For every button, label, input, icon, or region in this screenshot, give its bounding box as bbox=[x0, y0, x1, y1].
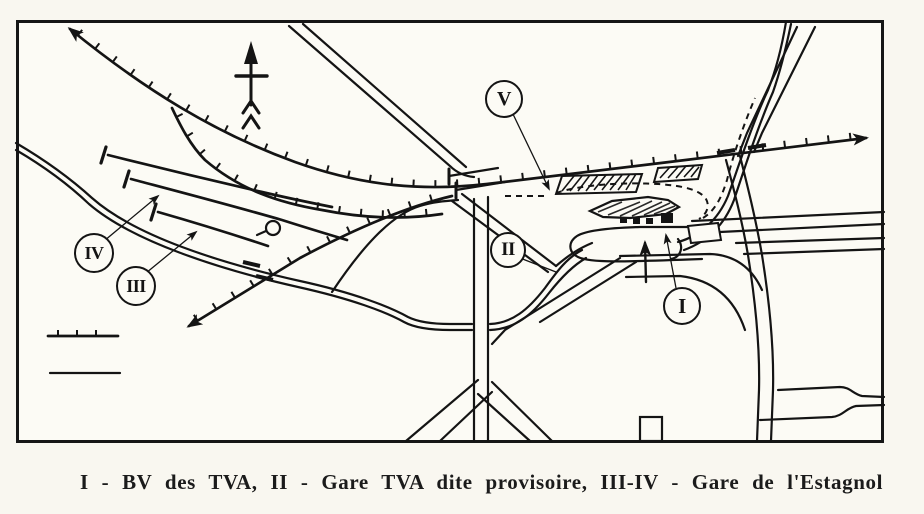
buffer-stop-1 bbox=[101, 147, 106, 163]
building-block bbox=[661, 213, 673, 223]
figure-caption: I - BV des TVA, II - Gare TVA dite provi… bbox=[80, 470, 892, 495]
marker-circle-V: V bbox=[485, 80, 523, 118]
avenue-road bbox=[289, 24, 474, 177]
leader-III bbox=[146, 232, 196, 273]
tramway-line-northeast bbox=[678, 22, 791, 250]
building-annex bbox=[633, 218, 640, 224]
north-arrow-icon bbox=[236, 41, 267, 128]
legend bbox=[48, 330, 120, 373]
marker-circle-III: III bbox=[116, 266, 156, 306]
railway-branch-southwest bbox=[189, 196, 452, 326]
marker-circle-II: II bbox=[490, 232, 526, 268]
building-annex bbox=[620, 217, 627, 223]
signal-symbol bbox=[257, 221, 280, 235]
north-arrow-head bbox=[244, 41, 258, 64]
station-building bbox=[590, 197, 679, 224]
marker-circle-IV: IV bbox=[74, 233, 114, 273]
rail-ticks bbox=[78, 30, 851, 187]
south-road-junction bbox=[406, 380, 552, 441]
marker-circle-I: I bbox=[663, 287, 701, 325]
parcel-rect bbox=[640, 417, 662, 441]
hatched-platform-1 bbox=[556, 174, 642, 194]
scanned-figure-page: { "caption": { "text": "I - BV des TVA, … bbox=[0, 0, 924, 514]
hatched-platform-2 bbox=[654, 165, 702, 182]
map-drawing bbox=[0, 0, 924, 514]
south-road-east bbox=[726, 156, 773, 441]
buffer-stop-2 bbox=[124, 171, 129, 187]
siding-track-3 bbox=[158, 212, 268, 246]
station-south-roads bbox=[492, 254, 762, 344]
entrance-arrow bbox=[645, 243, 646, 282]
estagnol-siding-tracks bbox=[101, 147, 347, 246]
bottomright-roads bbox=[640, 387, 884, 441]
leader-II bbox=[520, 258, 556, 272]
east-roads bbox=[688, 212, 884, 254]
building-annex bbox=[646, 218, 653, 224]
leader-I bbox=[666, 235, 676, 288]
parcel-block bbox=[688, 223, 721, 243]
buffer-stop-3 bbox=[151, 204, 156, 220]
